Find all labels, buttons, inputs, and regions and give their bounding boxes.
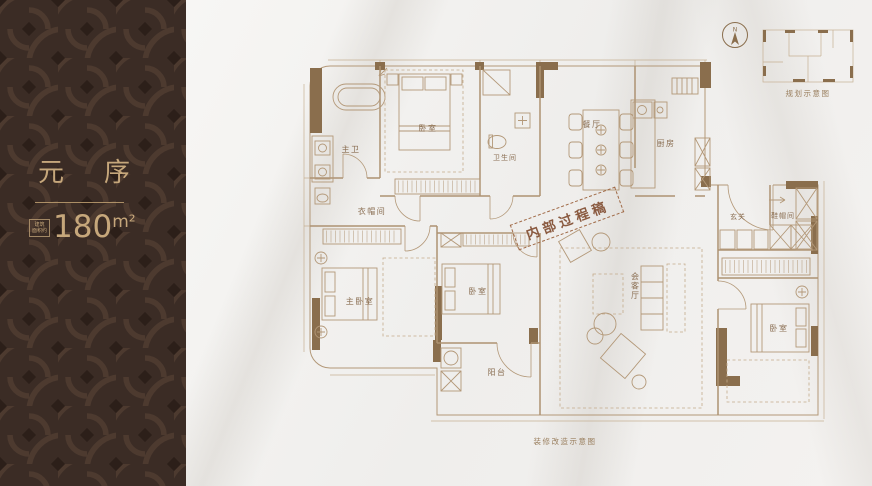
outer-walls [310, 66, 818, 415]
exterior-trim-lines [304, 60, 824, 421]
room-label-balcony: 阳台 [488, 367, 507, 377]
room-label-dining: 餐厅 [583, 120, 602, 129]
area-label-line2: 面积约 [32, 228, 47, 234]
bed-master [322, 268, 377, 320]
sidebar: 元序 建筑 面积约 180 m² VASEN MANSION [0, 0, 186, 486]
plan-name: 元序 [0, 152, 186, 189]
furniture [312, 68, 817, 408]
room-label-bedroom-top: 卧室 [419, 123, 438, 133]
room-label-cloakroom: 衣帽间 [358, 206, 387, 216]
mini-plan-caption: 规划示意图 [786, 88, 831, 98]
plan-caption: 装修改造示意图 [534, 436, 597, 446]
room-label-bedroom-center: 卧室 [469, 286, 488, 296]
room-label-master-bath: 主卫 [342, 144, 361, 154]
room-label-kitchen: 厨房 [657, 138, 676, 148]
room-label-foyer: 玄关 [730, 212, 746, 221]
room-label-shoe-room: 鞋帽间 [771, 211, 795, 220]
interior-walls [310, 66, 818, 415]
area-row: 建筑 面积约 180 m² [29, 212, 186, 242]
page: 元序 建筑 面积约 180 m² VASEN MANSION [0, 0, 872, 486]
floorplan-canvas: 主卫 卧室 卫生间 餐厅 厨房 衣帽间 主卧室 卧室 会客厅 阳台 玄关 鞋帽间… [186, 0, 872, 486]
area-unit: m² [112, 212, 135, 232]
bed-top [399, 74, 450, 150]
area-label-box: 建筑 面积约 [29, 219, 50, 237]
title-divider [35, 202, 124, 203]
site-mini-plan: 规划示意图 [763, 30, 853, 98]
room-label-master-bedroom: 主卧室 [346, 296, 375, 306]
room-label-bedroom-right: 卧室 [770, 323, 789, 333]
compass-north-icon: N [723, 23, 748, 48]
room-label-living: 会客厅 [631, 271, 640, 300]
floorplan: 主卫 卧室 卫生间 餐厅 厨房 衣帽间 主卧室 卧室 会客厅 阳台 玄关 鞋帽间… [275, 18, 872, 458]
room-label-bathroom: 卫生间 [493, 153, 517, 162]
area-value: 180 [53, 212, 112, 242]
